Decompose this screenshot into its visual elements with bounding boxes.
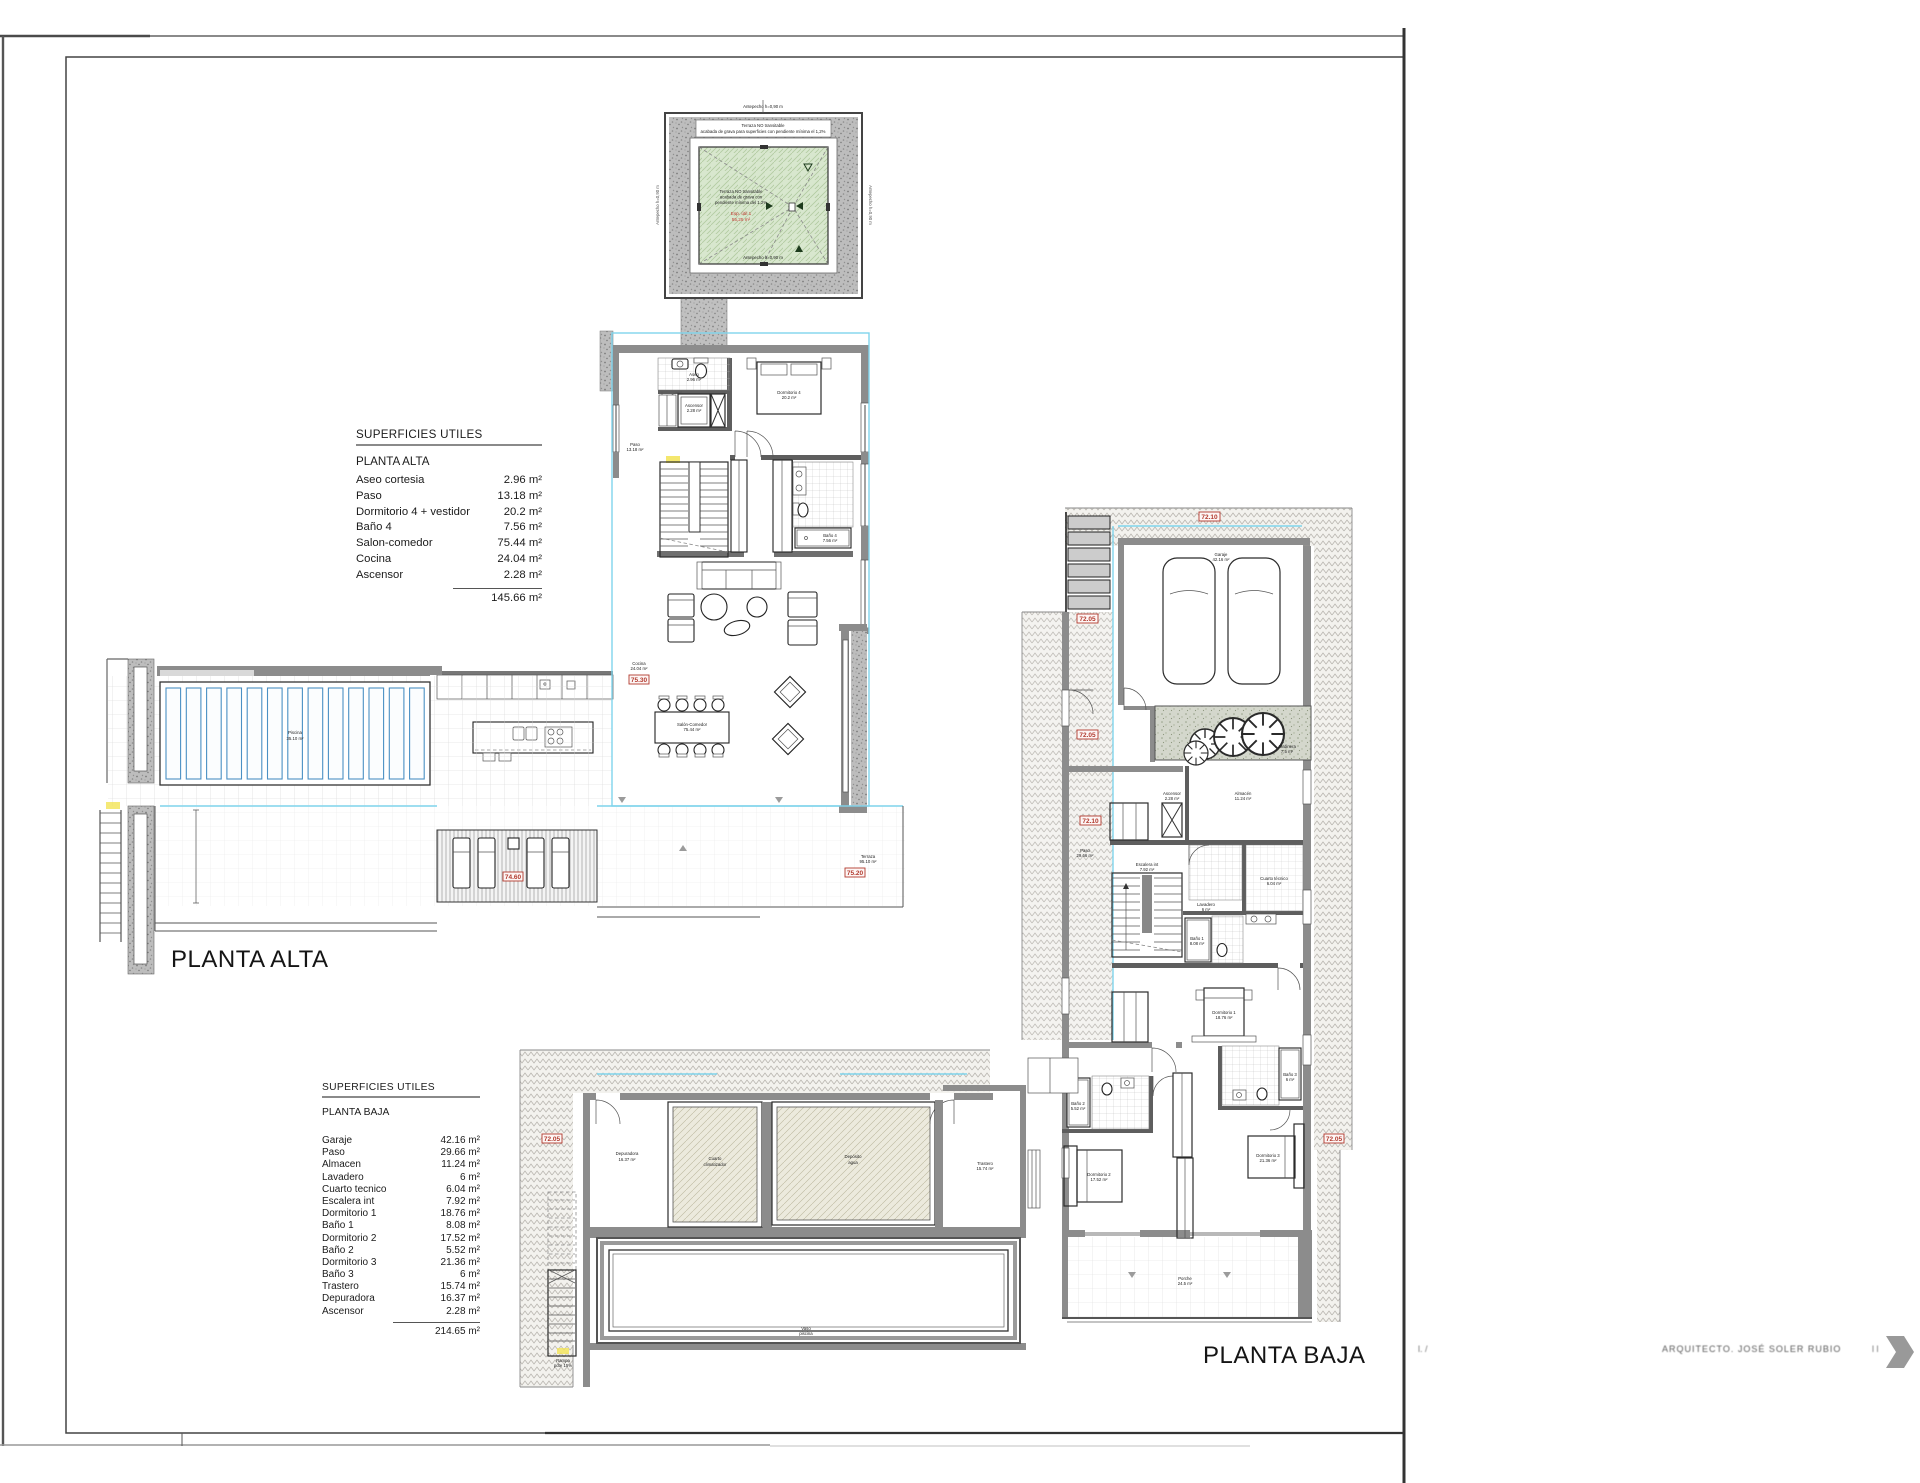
row-label: Baño 2	[322, 1245, 354, 1257]
row-value: 6.04 m²	[446, 1184, 480, 1196]
table-row: Ascensor2.28 m²	[356, 568, 542, 584]
planter: Jardinera 7,5 m²	[1155, 706, 1311, 765]
row-value: 16.37 m²	[441, 1293, 480, 1305]
row-value: 2.28 m²	[446, 1306, 480, 1318]
room-label: 95.10 m²	[860, 859, 878, 864]
table-row: Baño 36 m²	[322, 1269, 480, 1281]
elevation-tag-label: 75.30	[631, 677, 648, 684]
room-label: 2.96 m²	[687, 377, 702, 382]
table-row: Escalera int7.92 m²	[322, 1196, 480, 1208]
room-label: Depósito	[845, 1154, 863, 1159]
exterior-stair-alta	[100, 802, 154, 974]
table-floor-name: PLANTA ALTA	[356, 455, 542, 468]
total-value: 214.65 m²	[435, 1326, 480, 1337]
table-floor-name: PLANTA BAJA	[322, 1107, 480, 1118]
row-label: Garaje	[322, 1135, 352, 1147]
table-row: Dormitorio 4 + vestidor20.2 m²	[356, 505, 542, 521]
row-label: Lavadero	[322, 1172, 364, 1184]
row-value: 2.96 m²	[504, 473, 542, 489]
footer-fragment: l l	[1872, 1344, 1879, 1354]
architect-credit: ARQUITECTO. JOSÉ SOLER RUBIO	[1662, 1344, 1841, 1354]
room-label: 7.92 m²	[1140, 867, 1155, 872]
table-row: Cuarto tecnico6.04 m²	[322, 1184, 480, 1196]
row-value: 21.36 m²	[441, 1257, 480, 1269]
table-row: Paso29.66 m²	[322, 1147, 480, 1159]
superficies-table-planta-alta: SUPERFICIES UTILES PLANTA ALTA Aseo cort…	[356, 428, 542, 604]
room-label: 20.2 m²	[782, 395, 797, 400]
entry-stairs	[1066, 512, 1110, 612]
room-label: 21.36 m²	[1260, 1158, 1278, 1163]
elevator-block: Ascensor 2.28 m²	[659, 394, 725, 427]
room-label: 7,5 m²	[1281, 749, 1294, 754]
roof-banner-line1: Terraza NO transitable	[742, 123, 786, 128]
room-label: 6.04 m²	[1267, 881, 1282, 886]
table-total: 214.65 m²	[393, 1322, 480, 1337]
table-row: Cocina24.04 m²	[356, 552, 542, 568]
room-label: Piscina	[288, 730, 302, 735]
room-label: agua	[848, 1160, 858, 1165]
row-label: Dormitorio 3	[322, 1257, 376, 1269]
table-row: Dormitorio 217.52 m²	[322, 1233, 480, 1245]
elevation-tag-label: 72.05	[1079, 732, 1096, 739]
elevation-tag: 72.10	[1080, 816, 1101, 825]
room-label: 42.16 m²	[1213, 557, 1231, 562]
elevation-tag-label: 74.60	[505, 874, 522, 881]
table-total: 145.66 m²	[453, 588, 542, 604]
row-label: Escalera int	[322, 1196, 374, 1208]
row-label: Baño 1	[322, 1220, 354, 1232]
elevation-tag-label: 72.05	[544, 1136, 561, 1143]
row-value: 29.66 m²	[441, 1147, 480, 1159]
bano4-zone: Baño 4 7.56 m²	[731, 431, 853, 552]
stairs-planta-alta	[660, 456, 728, 557]
room-label: 5.52 m²	[1071, 1106, 1086, 1111]
row-label: Aseo cortesia	[356, 473, 424, 489]
pool-basin: Vaso piscina	[597, 1238, 1020, 1343]
row-value: 15.74 m²	[441, 1281, 480, 1293]
row-value: 5.52 m²	[446, 1245, 480, 1257]
row-value: 8.08 m²	[446, 1220, 480, 1232]
room-label: 13.18 m²	[627, 447, 645, 452]
elevation-tag: Cocina 24.04 m² 75.30	[629, 661, 649, 684]
row-value: 42.16 m²	[441, 1135, 480, 1147]
elevation-tag-label: 72.10	[1201, 514, 1218, 521]
row-value: 17.52 m²	[441, 1233, 480, 1245]
room-label: 6 m²	[1202, 907, 1211, 912]
floor-plan-drawing: Terraza NO transitable acabada de grava …	[0, 0, 1920, 1483]
planta-alta-title: PLANTA ALTA	[171, 946, 329, 974]
roof-banner-line2: acabada de grava para superficies con pe…	[701, 129, 826, 134]
stairs-planta-baja: Escalera int 7.92 m²	[1112, 862, 1182, 957]
table-row: Salon-comedor75.44 m²	[356, 536, 542, 552]
row-value: 7.56 m²	[504, 520, 542, 536]
room-label: 24.04 m²	[631, 666, 649, 671]
row-value: 13.18 m²	[497, 489, 542, 505]
room-label: 2.28 m²	[687, 408, 702, 413]
row-value: 7.92 m²	[446, 1196, 480, 1208]
table-row: Trastero15.74 m²	[322, 1281, 480, 1293]
room-label: climatizador	[704, 1162, 727, 1167]
planta-baja-plan: Garaje 42.16 m² Jardinera 7,5 m² Ascenso…	[520, 508, 1352, 1387]
row-label: Dormitorio 2	[322, 1233, 376, 1245]
row-label: Baño 3	[322, 1269, 354, 1281]
row-value: 11.24 m²	[441, 1159, 480, 1171]
row-label: Trastero	[322, 1281, 359, 1293]
room-label: 18.76 m²	[1216, 1015, 1234, 1020]
table-row: Baño 18.08 m²	[322, 1220, 480, 1232]
table-row: Paso13.18 m²	[356, 489, 542, 505]
room-label: 11.24 m²	[1235, 796, 1252, 801]
footer-fragment: l. /	[1418, 1344, 1428, 1354]
table-row: Dormitorio 118.76 m²	[322, 1208, 480, 1220]
garage: Garaje 42.16 m²	[1124, 545, 1303, 710]
table-row: Baño 47.56 m²	[356, 520, 542, 536]
table-row: Aseo cortesia2.96 m²	[356, 473, 542, 489]
row-value: 6 m²	[460, 1269, 480, 1281]
room-label: 6 m²	[1286, 1077, 1295, 1082]
row-label: Ascensor	[356, 568, 403, 584]
service-wing: Depuradora 16.37 m² Cuarto climatizador …	[548, 1058, 1078, 1387]
roof-area-label-line2: 55,25 m²	[732, 217, 751, 222]
table-row: Depuradora16.37 m²	[322, 1293, 480, 1305]
room-label: 16.37 m²	[619, 1157, 637, 1162]
row-label: Almacen	[322, 1159, 361, 1171]
row-label: Baño 4	[356, 520, 392, 536]
row-label: Dormitorio 1	[322, 1208, 376, 1220]
scan-artifact	[1886, 1336, 1914, 1368]
room-label: 2.28 m²	[1165, 796, 1180, 801]
room-label: 35.10 m²	[287, 736, 305, 741]
row-value: 24.04 m²	[497, 552, 542, 568]
row-value: 6 m²	[460, 1172, 480, 1184]
table-row: Garaje42.16 m²	[322, 1135, 480, 1147]
lower-section: Baño 2 5.52 m² Baño 3 6 m² Dormitorio 2 …	[1062, 1046, 1312, 1322]
row-label: Paso	[356, 489, 382, 505]
elevation-tag-label: 72.10	[1082, 818, 1099, 825]
elevation-tag-label: 75.20	[847, 870, 864, 877]
planta-baja-title: PLANTA BAJA	[1203, 1342, 1365, 1370]
room-label: pdte 15%	[554, 1363, 572, 1368]
room-label: 75.44 m²	[684, 727, 702, 732]
row-value: 75.44 m²	[497, 536, 542, 552]
row-label: Dormitorio 4 + vestidor	[356, 505, 470, 521]
room-label: 24.5 m²	[1178, 1281, 1193, 1286]
row-value: 2.28 m²	[504, 568, 542, 584]
roof-parapet-left-label: Antepecho h=0,90 m	[655, 185, 660, 225]
superficies-table-planta-baja: SUPERFICIES UTILES PLANTA BAJA Garaje42.…	[322, 1082, 480, 1337]
table-row: Ascensor2.28 m²	[322, 1306, 480, 1318]
row-label: Salon-comedor	[356, 536, 433, 552]
table-row: Dormitorio 321.36 m²	[322, 1257, 480, 1269]
table-header: SUPERFICIES UTILES	[322, 1082, 480, 1098]
architectural-plan-sheet: Terraza NO transitable acabada de grava …	[0, 0, 1920, 1483]
table-row: Almacen11.24 m²	[322, 1159, 480, 1171]
table-row: Baño 25.52 m²	[322, 1245, 480, 1257]
row-label: Depuradora	[322, 1293, 375, 1305]
table-row: Lavadero6 m²	[322, 1172, 480, 1184]
total-value: 145.66 m²	[491, 592, 542, 604]
room-label: 15.74 m²	[977, 1166, 995, 1171]
sun-deck: 74.60	[437, 830, 597, 902]
room-label: 29.66 m²	[1077, 853, 1095, 858]
row-label: Cocina	[356, 552, 391, 568]
room-label: 7.56 m²	[823, 538, 838, 543]
dormitorio4: Dormitorio 4 20.2 m²	[735, 358, 831, 457]
roof-note-line2: acabada de grava con	[720, 195, 763, 200]
row-value: 20.2 m²	[504, 505, 542, 521]
elevation-tag-label: 72.05	[1079, 616, 1096, 623]
elevation-tag-label: 72.05	[1326, 1136, 1343, 1143]
roof-terrace-plan: Terraza NO transitable acabada de grava …	[655, 100, 873, 352]
room-label: Cuarto	[709, 1156, 723, 1161]
dining-table: Salón-Comedor 75.44 m²	[655, 696, 729, 757]
room-label: 8.08 m²	[1190, 941, 1205, 946]
room-label: 17.52 m²	[1091, 1177, 1109, 1182]
right-pillar	[839, 624, 867, 813]
roof-note-line1: Terraza NO transitable	[720, 189, 764, 194]
row-label: Ascensor	[322, 1306, 364, 1318]
roof-parapet-right-label: Antepecho h=0,90 m	[868, 185, 873, 225]
row-value: 18.76 m²	[441, 1208, 480, 1220]
roof-parapet-bottom-label: Antepecho h=0,90 m	[743, 255, 783, 260]
roof-area-label-line1: Esp. útil 1	[731, 211, 752, 216]
chevron-right-icon	[1886, 1336, 1914, 1368]
table-header: SUPERFICIES UTILES	[356, 428, 542, 446]
room-label: piscina	[799, 1331, 813, 1336]
row-label: Paso	[322, 1147, 345, 1159]
row-label: Cuarto tecnico	[322, 1184, 386, 1196]
roof-note-line3: pendiente mínima del 1,2%	[715, 200, 767, 205]
room-label: Depuradora	[616, 1151, 639, 1156]
